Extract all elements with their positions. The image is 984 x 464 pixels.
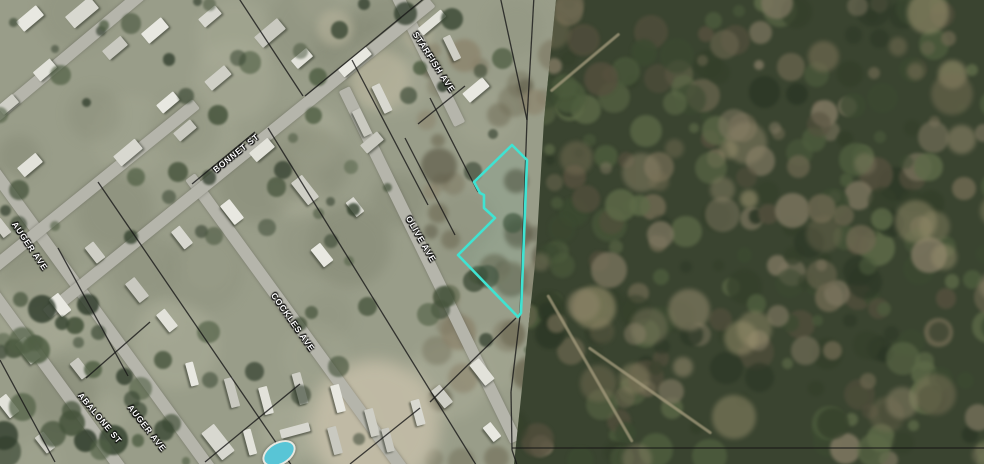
aerial-map[interactable]: STARFISH AVE BONNET ST OLIVE AVE COCKLES…: [0, 0, 984, 464]
